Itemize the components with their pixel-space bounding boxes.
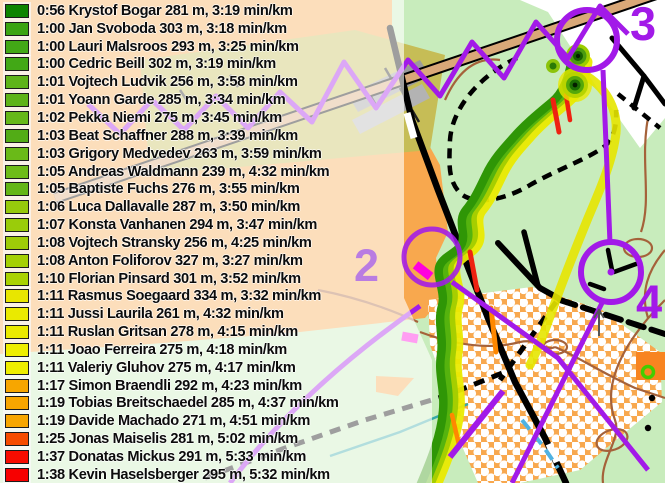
pace-color-swatch — [5, 75, 29, 89]
runner-label: 1:10 Florian Pinsard 301 m, 3:52 min/km — [37, 271, 301, 287]
runner-label: 1:11 Rasmus Soegaard 334 m, 3:32 min/km — [37, 288, 321, 304]
runner-row[interactable]: 1:06 Luca Dallavalle 287 m, 3:50 min/km — [0, 198, 470, 216]
runner-label: 1:08 Vojtech Stransky 256 m, 4:25 min/km — [37, 235, 312, 251]
runner-row[interactable]: 1:11 Ruslan Gritsan 278 m, 4:15 min/km — [0, 323, 470, 341]
runner-row[interactable]: 1:38 Kevin Haselsberger 295 m, 5:32 min/… — [0, 466, 470, 483]
runner-label: 1:08 Anton Foliforov 327 m, 3:27 min/km — [37, 253, 303, 269]
runner-row[interactable]: 1:08 Anton Foliforov 327 m, 3:27 min/km — [0, 252, 470, 270]
runner-label: 1:25 Jonas Maiselis 281 m, 5:02 min/km — [37, 431, 298, 447]
runner-label: 0:56 Krystof Bogar 281 m, 3:19 min/km — [37, 3, 293, 19]
runner-label: 1:00 Jan Svoboda 303 m, 3:18 min/km — [37, 21, 287, 37]
pace-color-swatch — [5, 218, 29, 232]
runner-label: 1:06 Luca Dallavalle 287 m, 3:50 min/km — [37, 199, 300, 215]
pace-color-swatch — [5, 236, 29, 250]
runner-label: 1:37 Donatas Mickus 291 m, 5:33 min/km — [37, 449, 306, 465]
runner-row[interactable]: 1:11 Joao Ferreira 275 m, 4:18 min/km — [0, 341, 470, 359]
runner-row[interactable]: 1:01 Yoann Garde 285 m, 3:34 min/km — [0, 91, 470, 109]
runner-row[interactable]: 1:11 Rasmus Soegaard 334 m, 3:32 min/km — [0, 288, 470, 306]
pace-color-swatch — [5, 93, 29, 107]
pace-color-swatch — [5, 4, 29, 18]
runner-row[interactable]: 1:05 Baptiste Fuchs 276 m, 3:55 min/km — [0, 180, 470, 198]
runner-row[interactable]: 1:00 Cedric Beill 302 m, 3:19 min/km — [0, 56, 470, 74]
runner-row[interactable]: 1:19 Davide Machado 271 m, 4:51 min/km — [0, 412, 470, 430]
runner-label: 1:38 Kevin Haselsberger 295 m, 5:32 min/… — [37, 467, 330, 483]
pace-color-swatch — [5, 22, 29, 36]
pace-color-swatch — [5, 343, 29, 357]
pace-color-swatch — [5, 111, 29, 125]
pace-color-swatch — [5, 450, 29, 464]
pace-color-swatch — [5, 432, 29, 446]
runner-label: 1:05 Andreas Waldmann 239 m, 4:32 min/km — [37, 164, 329, 180]
runner-row[interactable]: 1:03 Beat Schaffner 288 m, 3:39 min/km — [0, 127, 470, 145]
runner-row[interactable]: 1:25 Jonas Maiselis 281 m, 5:02 min/km — [0, 430, 470, 448]
runner-row[interactable]: 1:37 Donatas Mickus 291 m, 5:33 min/km — [0, 448, 470, 466]
pace-color-swatch — [5, 254, 29, 268]
pace-color-swatch — [5, 468, 29, 482]
runner-label: 1:03 Grigory Medvedev 263 m, 3:59 min/km — [37, 146, 322, 162]
leg-analysis-screen: 3 4 2 0:56 Krystof Bogar 281 m, 3:19 min… — [0, 0, 665, 483]
runner-label: 1:11 Valeriy Gluhov 275 m, 4:17 min/km — [37, 360, 295, 376]
runner-row[interactable]: 1:19 Tobias Breitschaedel 285 m, 4:37 mi… — [0, 395, 470, 413]
pace-color-swatch — [5, 40, 29, 54]
pace-color-swatch — [5, 272, 29, 286]
pace-color-swatch — [5, 182, 29, 196]
runner-label: 1:01 Vojtech Ludvik 256 m, 3:58 min/km — [37, 74, 298, 90]
runner-row[interactable]: 1:08 Vojtech Stransky 256 m, 4:25 min/km — [0, 234, 470, 252]
pace-color-swatch — [5, 57, 29, 71]
runner-row[interactable]: 1:11 Valeriy Gluhov 275 m, 4:17 min/km — [0, 359, 470, 377]
pace-color-swatch — [5, 165, 29, 179]
runner-label: 1:07 Konsta Vanhanen 294 m, 3:47 min/km — [37, 217, 317, 233]
runner-label: 1:01 Yoann Garde 285 m, 3:34 min/km — [37, 92, 285, 108]
pace-color-swatch — [5, 200, 29, 214]
runner-label: 1:00 Cedric Beill 302 m, 3:19 min/km — [37, 56, 276, 72]
pace-color-swatch — [5, 325, 29, 339]
runner-label: 1:19 Tobias Breitschaedel 285 m, 4:37 mi… — [37, 395, 338, 411]
runner-label: 1:19 Davide Machado 271 m, 4:51 min/km — [37, 413, 310, 429]
pace-color-swatch — [5, 414, 29, 428]
control-4-center-dot — [608, 269, 615, 276]
runner-row[interactable]: 1:05 Andreas Waldmann 239 m, 4:32 min/km — [0, 163, 470, 181]
runner-row[interactable]: 1:02 Pekka Niemi 275 m, 3:45 min/km — [0, 109, 470, 127]
runner-list: 0:56 Krystof Bogar 281 m, 3:19 min/km 1:… — [0, 0, 470, 483]
runner-row[interactable]: 1:17 Simon Braendli 292 m, 4:23 min/km — [0, 377, 470, 395]
control-number-3: 3 — [630, 0, 656, 50]
runner-label: 1:03 Beat Schaffner 288 m, 3:39 min/km — [37, 128, 298, 144]
runner-label: 1:11 Jussi Laurila 261 m, 4:32 min/km — [37, 306, 284, 322]
runner-row[interactable]: 1:07 Konsta Vanhanen 294 m, 3:47 min/km — [0, 216, 470, 234]
pace-color-swatch — [5, 396, 29, 410]
runner-label: 1:02 Pekka Niemi 275 m, 3:45 min/km — [37, 110, 282, 126]
pace-color-swatch — [5, 361, 29, 375]
runner-row[interactable]: 1:11 Jussi Laurila 261 m, 4:32 min/km — [0, 305, 470, 323]
pace-color-swatch — [5, 379, 29, 393]
runner-label: 1:17 Simon Braendli 292 m, 4:23 min/km — [37, 378, 302, 394]
pace-color-swatch — [5, 307, 29, 321]
runner-label: 1:11 Ruslan Gritsan 278 m, 4:15 min/km — [37, 324, 298, 340]
runner-label: 1:00 Lauri Malsroos 293 m, 3:25 min/km — [37, 39, 299, 55]
runner-label: 1:11 Joao Ferreira 275 m, 4:18 min/km — [37, 342, 287, 358]
pace-color-swatch — [5, 147, 29, 161]
runner-row[interactable]: 1:03 Grigory Medvedev 263 m, 3:59 min/km — [0, 145, 470, 163]
runner-label: 1:05 Baptiste Fuchs 276 m, 3:55 min/km — [37, 181, 299, 197]
runner-row[interactable]: 0:56 Krystof Bogar 281 m, 3:19 min/km — [0, 2, 470, 20]
runner-row[interactable]: 1:01 Vojtech Ludvik 256 m, 3:58 min/km — [0, 73, 470, 91]
runner-row[interactable]: 1:00 Lauri Malsroos 293 m, 3:25 min/km — [0, 38, 470, 56]
pace-color-swatch — [5, 289, 29, 303]
runner-row[interactable]: 1:10 Florian Pinsard 301 m, 3:52 min/km — [0, 270, 470, 288]
control-number-4: 4 — [636, 275, 662, 328]
pace-color-swatch — [5, 129, 29, 143]
runner-row[interactable]: 1:00 Jan Svoboda 303 m, 3:18 min/km — [0, 20, 470, 38]
